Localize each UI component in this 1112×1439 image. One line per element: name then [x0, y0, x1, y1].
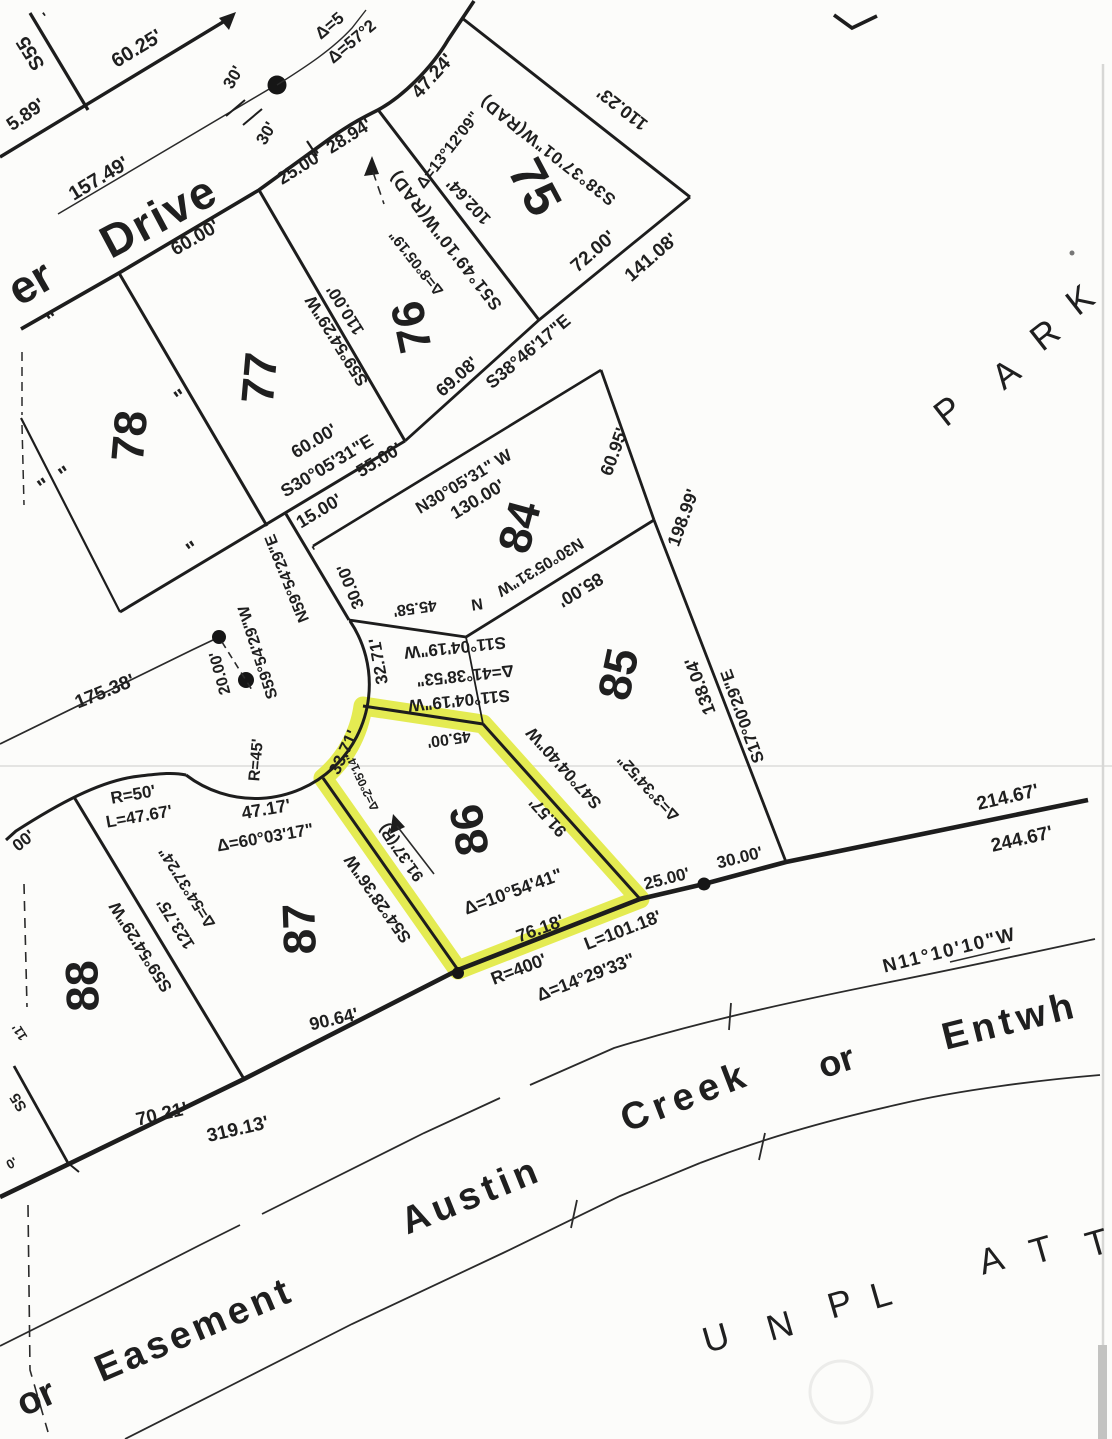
svg-text:76: 76 — [380, 297, 442, 358]
svg-text:87: 87 — [272, 903, 326, 956]
svg-text:77: 77 — [231, 350, 287, 406]
svg-text:88: 88 — [55, 960, 109, 1013]
svg-text:85: 85 — [587, 644, 649, 705]
svg-text:N: N — [470, 594, 484, 612]
svg-text:78: 78 — [101, 408, 157, 464]
svg-text:86: 86 — [439, 800, 499, 859]
